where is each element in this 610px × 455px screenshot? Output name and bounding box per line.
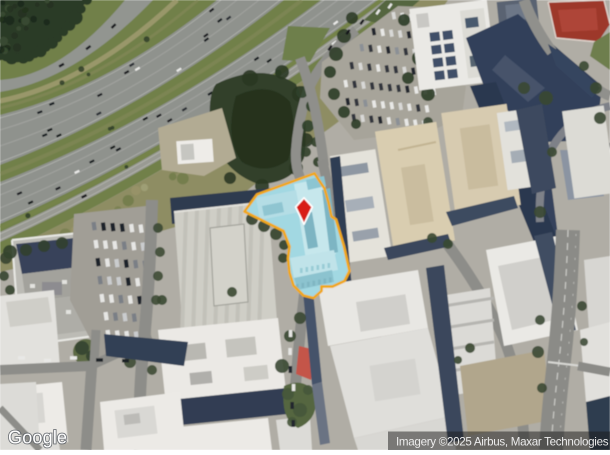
svg-text:Google: Google xyxy=(8,428,67,448)
svg-text:Imagery ©2025 Airbus, Maxar Te: Imagery ©2025 Airbus, Maxar Technologies xyxy=(396,436,609,449)
